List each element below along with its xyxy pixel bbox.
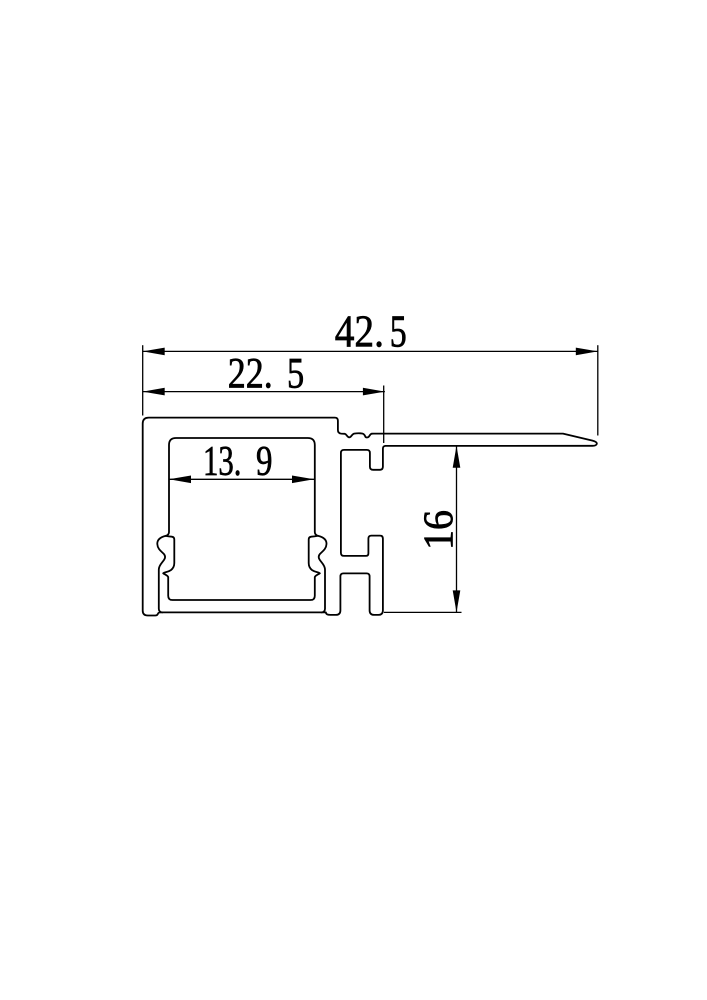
svg-text:22.: 22.: [228, 351, 273, 398]
svg-text:16: 16: [417, 510, 463, 550]
svg-text:13.: 13.: [203, 439, 242, 485]
svg-text:5: 5: [287, 351, 304, 398]
svg-text:5: 5: [390, 307, 407, 357]
svg-text:42.: 42.: [335, 307, 384, 357]
svg-text:9: 9: [256, 439, 273, 485]
